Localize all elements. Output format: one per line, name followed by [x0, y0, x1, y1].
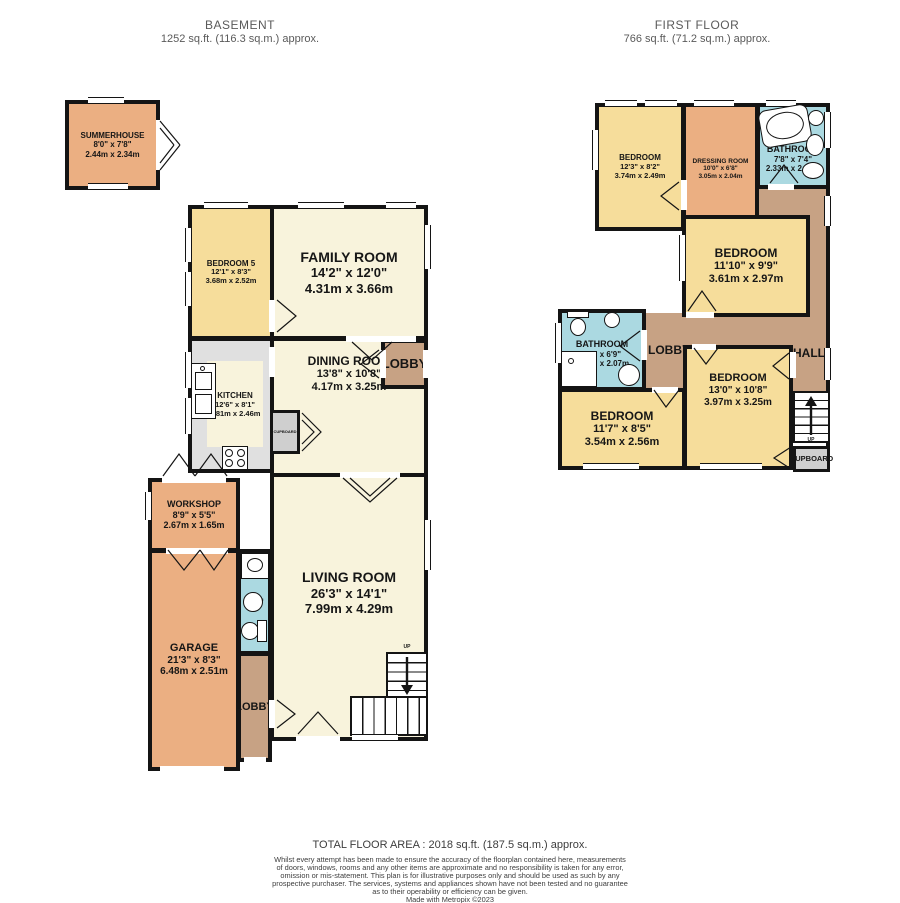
door-gap	[768, 184, 794, 190]
door-gap	[380, 350, 386, 378]
room-workshop: WORKSHOP 8'9" x 5'5" 2.67m x 1.65m	[148, 478, 240, 552]
window	[185, 228, 192, 262]
room-garage: GARAGE 21'3" x 8'3" 6.48m x 2.51m	[148, 549, 240, 771]
window	[605, 100, 637, 107]
room-dims-imperial: 8'9" x 5'5"	[163, 510, 224, 521]
burner-icon	[237, 449, 245, 457]
window	[145, 492, 152, 520]
room-dims-metric: 2.44m x 2.34m	[80, 150, 144, 159]
door-gap	[156, 120, 164, 170]
room-name: CUPBOARD	[273, 430, 296, 435]
burner-icon	[225, 449, 233, 457]
door-gap	[160, 766, 224, 772]
window	[424, 225, 431, 269]
window	[386, 202, 416, 209]
room-bedroom-first-mid: BEDROOM 11'10" x 9'9" 3.61m x 2.97m	[682, 215, 810, 317]
first-floor-area: 766 sq.ft. (71.2 sq.m.) approx.	[537, 33, 857, 45]
window	[352, 734, 398, 741]
window	[88, 97, 124, 104]
room-dims-imperial: 26'3" x 14'1"	[302, 586, 396, 601]
room-dressing-room: DRESSING ROOM 10'0" x 6'8" 3.05m x 2.04m	[682, 103, 759, 219]
room-lobby-basement-top: LOBBY	[381, 339, 428, 389]
room-family-room: FAMILY ROOM 14'2" x 12'0" 4.31m x 3.66m	[270, 205, 428, 340]
room-name: DINING ROOM	[308, 354, 391, 368]
door-gap	[162, 477, 226, 483]
window	[185, 272, 192, 306]
room-dims-metric: 3.05m x 2.04m	[693, 173, 749, 181]
stairs-basement-upper	[386, 652, 428, 698]
room-dims-metric: 3.61m x 2.97m	[709, 273, 784, 286]
door-gap	[681, 180, 687, 210]
room-dims-metric: 3.97m x 3.25m	[704, 397, 772, 409]
room-lobby-basement-bottom: LOBBY	[237, 652, 272, 762]
room-dims-metric: 3.81m x 2.46m	[210, 410, 261, 419]
basement-header: BASEMENT 1252 sq.ft. (116.3 sq.m.) appro…	[80, 18, 400, 45]
basement-area: 1252 sq.ft. (116.3 sq.m.) approx.	[80, 33, 400, 45]
window	[645, 100, 677, 107]
door-gap	[686, 312, 714, 318]
window	[592, 130, 599, 170]
sink-unit-icon	[561, 351, 597, 387]
door-gap	[340, 472, 400, 478]
door-gap	[166, 548, 228, 554]
sink-bowl-icon	[247, 558, 263, 572]
room-name: FAMILY ROOM	[300, 249, 397, 266]
door-gap	[652, 387, 678, 393]
room-dims-imperial: 10'0" x 6'8"	[693, 165, 749, 173]
floorplan-canvas: BASEMENT 1252 sq.ft. (116.3 sq.m.) appro…	[0, 0, 900, 903]
room-name: WORKSHOP	[163, 499, 224, 510]
stairs-first-floor	[793, 391, 830, 443]
door-gap	[641, 330, 647, 360]
window	[694, 100, 734, 107]
door-gap	[269, 700, 275, 728]
room-dims-metric: 4.17m x 3.25m	[308, 381, 391, 394]
burner-icon	[225, 459, 233, 467]
toilet-tank-icon	[257, 620, 267, 642]
room-summerhouse: SUMMERHOUSE 8'0" x 7'8" 2.44m x 2.34m	[65, 100, 160, 190]
sink-icon	[802, 162, 824, 179]
sink-icon	[604, 312, 620, 328]
faucet-icon	[200, 366, 205, 371]
window	[424, 520, 431, 570]
first-floor-header: FIRST FLOOR 766 sq.ft. (71.2 sq.m.) appr…	[537, 18, 857, 45]
total-floor-area: TOTAL FLOOR AREA : 2018 sq.ft. (187.5 sq…	[0, 839, 900, 851]
stairs-up-label-basement: UP	[390, 644, 424, 650]
credit-line: Made with Metropix ©2023	[0, 895, 900, 903]
room-dims-metric: 2.67m x 1.65m	[163, 520, 224, 531]
window	[679, 235, 686, 281]
first-floor-title: FIRST FLOOR	[537, 18, 857, 32]
room-name: BEDROOM	[585, 409, 660, 423]
room-dims-imperial: 14'2" x 12'0"	[300, 265, 397, 280]
room-dims-metric: 3.74m x 2.49m	[615, 172, 666, 181]
room-name: GARAGE	[160, 642, 228, 655]
window	[700, 463, 762, 470]
door-gap	[346, 336, 416, 342]
stairs-up-label-first-floor: UP	[796, 437, 826, 443]
room-name: SUMMERHOUSE	[80, 131, 144, 140]
room-dims-imperial: 13'8" x 10'8"	[308, 368, 391, 381]
room-dims-metric: 3.54m x 2.56m	[585, 436, 660, 449]
room-bedroom-first-br: BEDROOM 13'0" x 10'8" 3.97m x 3.25m	[683, 345, 793, 470]
stairs-basement-lower	[350, 696, 428, 736]
kitchen-sink-bowl-icon	[195, 394, 212, 414]
room-dims-imperial: 11'10" x 9'9"	[709, 260, 784, 273]
door-gap	[692, 344, 716, 350]
room-bedroom-first-top: BEDROOM 12'3" x 8'2" 3.74m x 2.49m	[595, 103, 685, 231]
door-gap	[790, 352, 796, 378]
room-name: LIVING ROOM	[302, 569, 396, 586]
room-dims-metric: 4.31m x 3.66m	[300, 281, 397, 296]
faucet-icon	[568, 358, 574, 364]
room-name: BEDROOM	[704, 372, 772, 385]
room-dims-imperial: 13'0" x 10'8"	[704, 385, 772, 397]
kitchen-sink-bowl-icon	[195, 372, 212, 390]
door-gap	[296, 736, 340, 742]
room-dims-metric: 3.68m x 2.52m	[206, 277, 257, 286]
toilet-tank-icon	[567, 311, 589, 318]
room-cupboard-first-floor: CUPBOARD	[793, 446, 830, 472]
window	[824, 196, 831, 226]
door-gap	[423, 350, 429, 378]
room-name: CUPBOARD	[790, 455, 833, 464]
window	[824, 348, 831, 380]
room-cupboard-basement: CUPBOARD	[270, 410, 300, 454]
shower-icon	[618, 364, 640, 386]
door-gap	[269, 300, 275, 332]
shower-icon	[243, 592, 263, 612]
window	[88, 183, 128, 190]
room-dims-metric: 7.99m x 4.29m	[302, 601, 396, 616]
sink-icon	[808, 110, 824, 126]
window	[204, 202, 248, 209]
room-name: DRESSING ROOM	[693, 158, 749, 166]
window	[824, 112, 831, 148]
door-gap	[244, 757, 266, 763]
basement-title: BASEMENT	[80, 18, 400, 32]
toilet-bowl-icon	[806, 134, 824, 156]
room-bedroom-first-bl: BEDROOM 11'7" x 8'5" 3.54m x 2.56m	[558, 388, 686, 470]
room-name: BATHROOM	[575, 339, 629, 350]
room-bedroom-5: BEDROOM 5 12'1" x 8'3" 3.68m x 2.52m	[188, 205, 274, 340]
room-name: BEDROOM	[709, 246, 784, 260]
room-dims-imperial: 8'0" x 7'8"	[80, 140, 144, 149]
burner-icon	[237, 459, 245, 467]
window	[298, 202, 344, 209]
room-name: LOBBY	[235, 701, 274, 714]
toilet-bowl-icon	[570, 318, 586, 336]
door-gap	[269, 347, 275, 377]
room-dims-imperial: 11'7" x 8'5"	[585, 423, 660, 436]
room-dims-imperial: 21'3" x 8'3"	[160, 655, 228, 667]
room-name: LOBBY	[382, 356, 428, 371]
room-dims-metric: 6.48m x 2.51m	[160, 666, 228, 678]
window	[583, 463, 639, 470]
